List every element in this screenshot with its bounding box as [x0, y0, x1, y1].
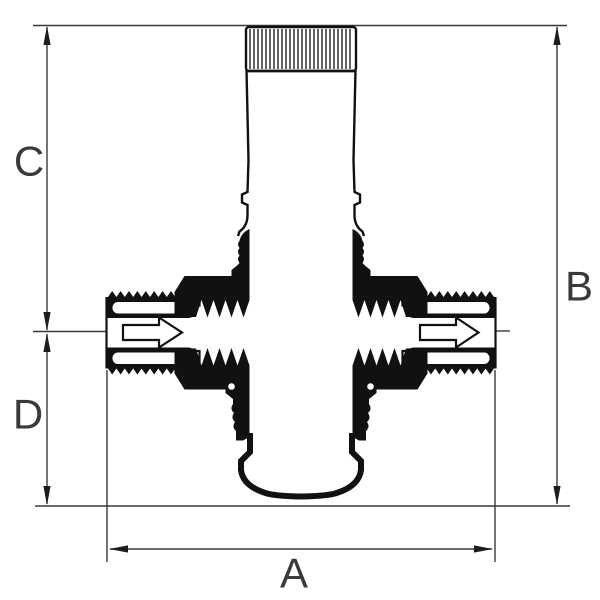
- technical-drawing-canvas: C D B A: [0, 0, 600, 600]
- valve-cross-section: [107, 27, 496, 497]
- dimension-label-c: C: [14, 138, 44, 185]
- bonnet-body: [238, 70, 364, 236]
- valve-dimension-diagram: C D B A: [0, 0, 600, 600]
- bowl-flange-thread: [226, 390, 250, 441]
- union-nut-upper: [175, 276, 250, 318]
- dimension-label-d: D: [13, 391, 43, 438]
- bowl-screw: [227, 382, 235, 390]
- bonnet-right-edge: [354, 70, 365, 236]
- dimension-label-b: B: [565, 263, 593, 310]
- dimension-label-a: A: [280, 550, 308, 597]
- bonnet-wall-thread: [232, 229, 250, 278]
- spring-bowl: [241, 433, 361, 497]
- port-thread-teeth-top: [108, 291, 175, 297]
- body-cavity: [250, 228, 352, 368]
- port-thread-teeth-bottom: [108, 369, 175, 375]
- bonnet-left-edge: [238, 70, 249, 236]
- union-nut-lower: [175, 348, 250, 390]
